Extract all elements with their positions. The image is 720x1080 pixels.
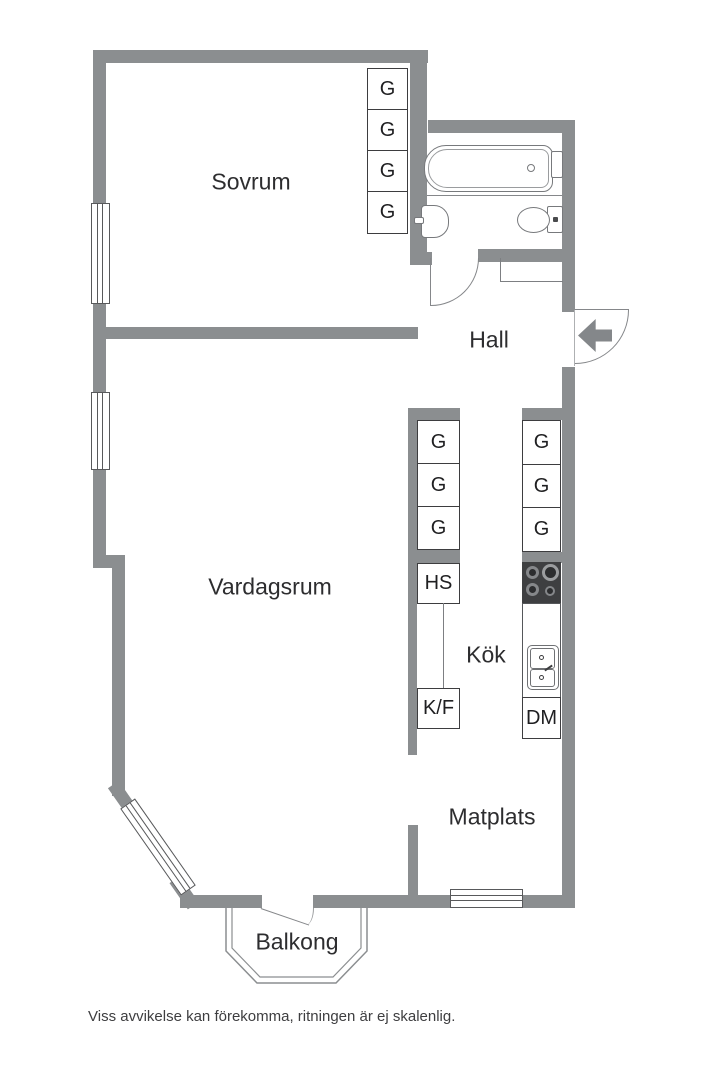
bathroom-door-swing	[431, 258, 479, 306]
window-mullion	[130, 803, 190, 889]
fridge-freezer-cell: K/F	[417, 688, 460, 729]
stove-burner	[526, 583, 539, 596]
cabinet-label: G	[534, 475, 550, 498]
stove-burner	[542, 564, 559, 581]
window-mullion	[451, 900, 522, 901]
room-label-matplats: Matplats	[449, 804, 536, 831]
wall-matplats-stub	[408, 825, 418, 895]
floor-plan: G G G G G G G HS K/F G G G	[0, 0, 720, 1080]
wardrobe-cell: G	[367, 68, 408, 111]
stove-icon	[522, 562, 561, 603]
kitchen-cabinet-cell: G	[522, 420, 561, 465]
bathtub-faucet-ledge	[551, 151, 563, 178]
wardrobe-cell: G	[367, 191, 408, 234]
wall-left-upper	[93, 50, 106, 205]
cabinet-label: HS	[425, 572, 453, 595]
wall-kitchen-left	[408, 408, 417, 755]
room-label-kok: Kök	[466, 642, 506, 669]
wardrobe-label: G	[380, 160, 396, 183]
wardrobe-cell: G	[367, 150, 408, 193]
cabinet-label: G	[534, 431, 550, 454]
stove-burner	[526, 566, 539, 579]
sink-drain	[539, 655, 544, 660]
cabinet-label: DM	[526, 707, 557, 730]
room-label-hall: Hall	[469, 327, 509, 354]
cabinet-label: G	[431, 517, 447, 540]
bedroom-window	[91, 203, 110, 304]
kitchen-cabinet-cell: G	[417, 506, 460, 550]
wall-left-between-windows	[93, 300, 106, 393]
cabinet-label: G	[431, 431, 447, 454]
kitchen-counter-edge	[443, 603, 444, 688]
kitchen-cabinet-cell: G	[522, 464, 561, 508]
room-label-vardagsrum: Vardagsrum	[208, 574, 332, 601]
cabinet-label: K/F	[423, 697, 454, 720]
wall-right-upper	[562, 120, 575, 312]
toilet-flush-button	[553, 217, 558, 222]
hall-shelf	[500, 258, 563, 282]
bathroom-sink-icon	[421, 205, 449, 238]
room-label-balkong: Balkong	[255, 929, 338, 956]
wardrobe-label: G	[380, 78, 396, 101]
wall-right-lower	[562, 367, 575, 908]
wardrobe-cell: G	[367, 109, 408, 152]
stove-burner	[545, 586, 555, 596]
wall-left-lower	[112, 556, 125, 796]
wall-kitchen-right-cap	[522, 408, 575, 420]
kitchen-cabinet-cell: G	[522, 507, 561, 552]
kitchen-sink-icon	[527, 645, 559, 690]
room-label-sovrum: Sovrum	[211, 169, 290, 196]
bathroom-divider-line	[427, 195, 562, 196]
wardrobe-label: G	[380, 201, 396, 224]
cabinet-label: G	[431, 474, 447, 497]
wall-left-mid	[93, 468, 106, 558]
kitchen-tall-cabinet-cell: HS	[417, 563, 460, 604]
kitchen-cabinet-cell: G	[417, 463, 460, 507]
wall-interior-bedroom	[93, 327, 418, 339]
dishwasher-cell: DM	[522, 697, 561, 739]
wall-bathroom-top	[428, 120, 575, 133]
matplats-window	[450, 889, 523, 908]
livingroom-window	[91, 392, 110, 470]
wall-top	[93, 50, 428, 63]
wardrobe-label: G	[380, 119, 396, 142]
window-mullion	[97, 204, 98, 303]
wall-kitchen-left-separator	[408, 550, 460, 563]
sink-drain	[539, 675, 544, 680]
sink-basin	[530, 669, 555, 687]
cabinet-label: G	[534, 518, 550, 541]
bathroom-sink-tap	[414, 217, 424, 224]
corner-diagonal-window	[120, 798, 196, 895]
window-mullion	[102, 393, 103, 469]
bathtub-icon	[424, 145, 553, 192]
bathtub-drain	[527, 164, 535, 172]
toilet-icon	[517, 207, 550, 233]
window-mullion	[102, 204, 103, 303]
disclaimer-text: Viss avvikelse kan förekomma, ritningen …	[88, 1008, 455, 1025]
window-mullion	[451, 895, 522, 896]
window-mullion	[97, 393, 98, 469]
window-mullion	[126, 806, 186, 892]
kitchen-cabinet-cell: G	[417, 420, 460, 464]
